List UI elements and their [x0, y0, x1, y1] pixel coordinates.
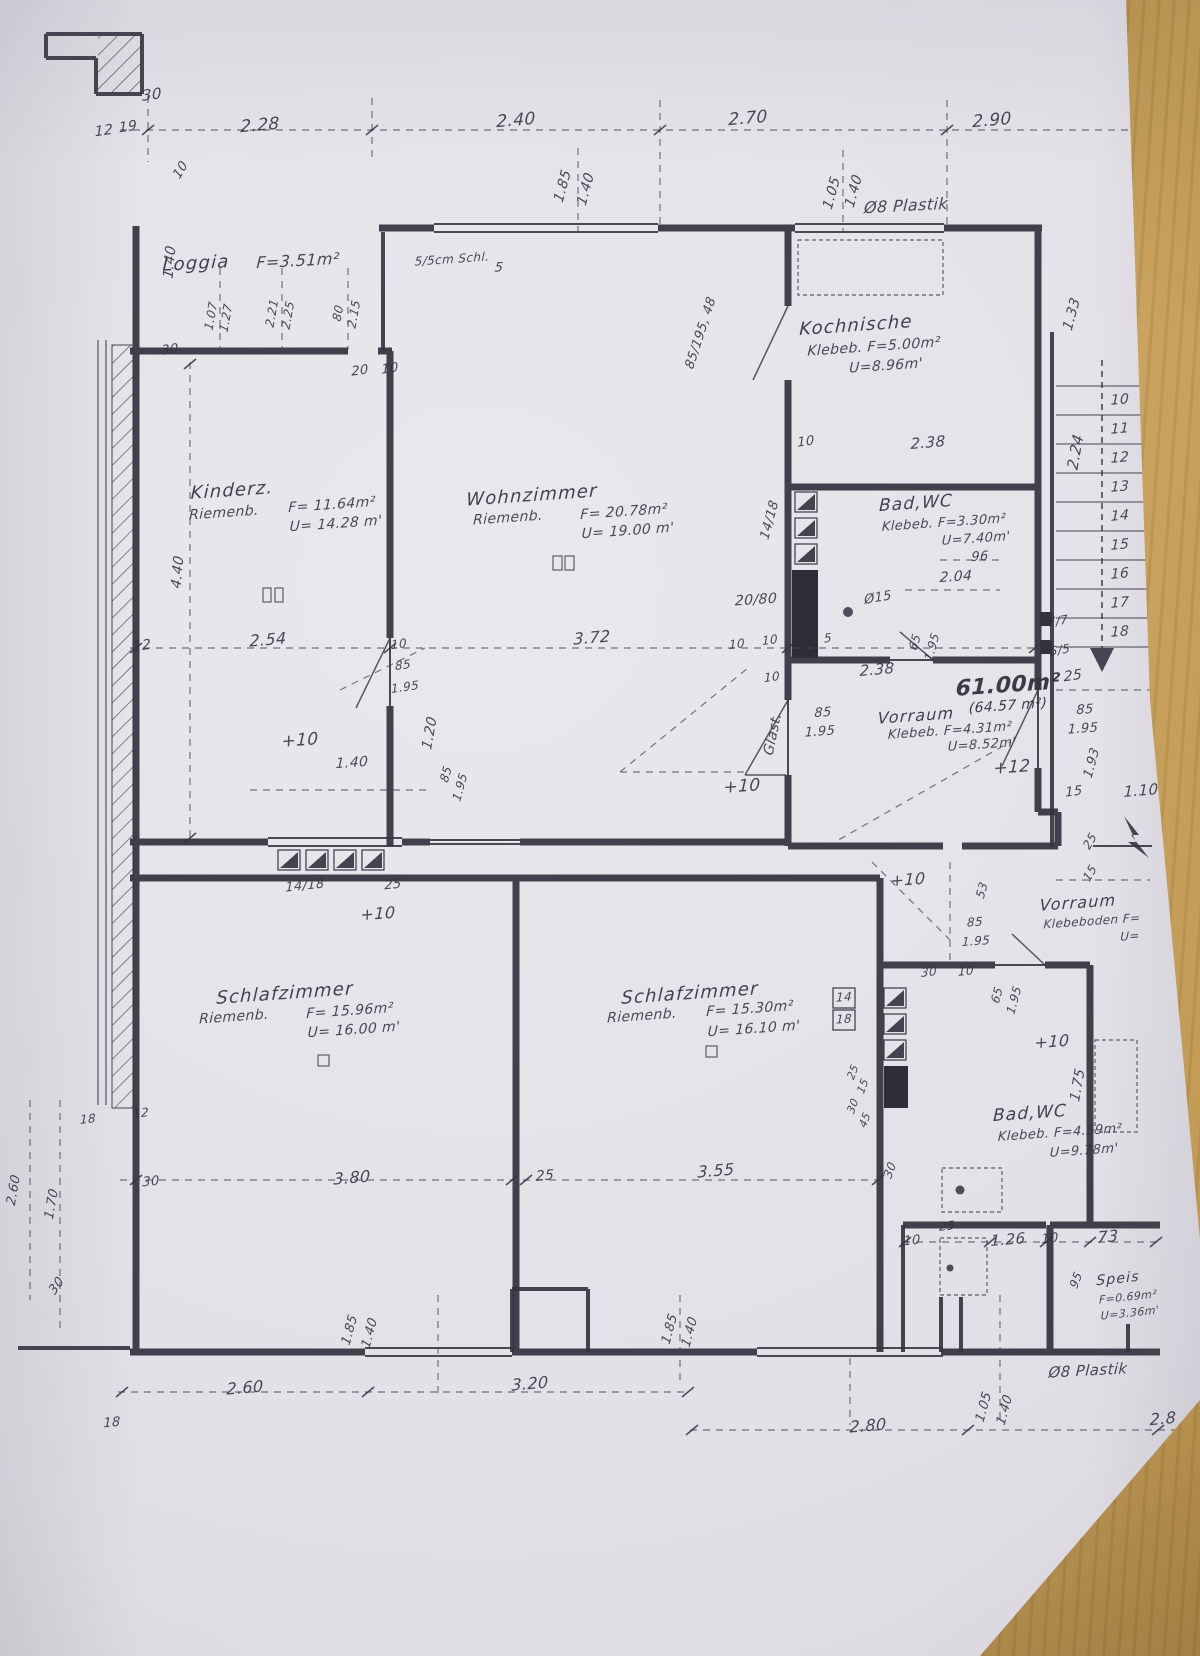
level-mark-label: +10: [1034, 1033, 1069, 1052]
stair-step-label: 18: [1111, 624, 1130, 640]
dim-label: 10: [762, 633, 778, 647]
dim-label: 10: [381, 361, 399, 376]
dim-label: 1.95: [391, 679, 419, 695]
note-label: 5/5cm Schl.: [414, 250, 489, 267]
dim-label: 2.70: [728, 109, 768, 130]
dim-label: Ø15: [864, 589, 892, 607]
dim-label: 1.33: [1061, 296, 1083, 333]
dim-label: 4.40: [170, 554, 187, 589]
room-spec-label: Riemenb.: [607, 1007, 677, 1026]
dim-label: 18: [80, 1112, 96, 1126]
dim-label: 1.75: [1068, 1067, 1087, 1103]
level-mark-label: +10: [281, 731, 319, 751]
dim-label: 1.40: [360, 1316, 380, 1350]
room-spec-label: Riemenb.: [189, 504, 259, 523]
dim-label: 30: [47, 1275, 67, 1298]
dim-label: 85: [395, 658, 411, 672]
stair-step-label: 12: [1111, 450, 1130, 466]
dim-label: 15: [1065, 784, 1083, 799]
room-spec-label: U= 16.10 m': [707, 1019, 800, 1040]
room-spec-label: U=7.40m': [941, 530, 1010, 548]
dim-label: 1.95: [1068, 721, 1099, 736]
dim-label: 20/80: [735, 591, 778, 608]
dim-label: 2.15: [346, 298, 363, 329]
dim-label: 2.90: [972, 111, 1012, 132]
dim-label: 45: [857, 1111, 872, 1130]
dim-label: 1.27: [218, 302, 235, 333]
dim-label: 10: [1041, 1232, 1058, 1247]
level-mark-label: +10: [723, 777, 761, 797]
dim-label: 3.72: [573, 628, 610, 647]
dim-label: 5: [824, 631, 832, 644]
dim-label: 85/195, 48: [684, 295, 719, 371]
dim-label: 3.80: [333, 1168, 370, 1187]
dim-label: 85: [967, 915, 983, 928]
dim-label: 1.05: [974, 1390, 994, 1424]
dim-label: 2.38: [859, 661, 894, 679]
dim-label: 2.54: [249, 630, 286, 649]
room-spec-label: F= 11.64m²: [288, 495, 376, 515]
dim-label: 30: [142, 86, 162, 104]
dim-label: 30: [882, 1160, 898, 1180]
level-mark-label: +12: [993, 758, 1031, 778]
dim-label: 85: [1076, 703, 1094, 717]
note-label: Ø8 Plastik: [1048, 1361, 1128, 1380]
dim-label: 15: [855, 1077, 870, 1096]
dim-label: 10: [764, 670, 780, 684]
dim-label: 12: [133, 1106, 149, 1120]
note-label: Glast.: [762, 711, 784, 757]
dim-label: 1.93: [1082, 746, 1102, 780]
stair-step-label: 16: [1111, 566, 1130, 582]
dim-label: 10: [391, 637, 407, 651]
dim-label: 1.40: [335, 755, 368, 771]
dim-label: 25: [1081, 830, 1099, 851]
room-spec-label: U=8.52m': [947, 736, 1016, 754]
dim-label: 3.55: [697, 1161, 734, 1180]
dim-label: 3.20: [511, 1374, 548, 1393]
room-spec-label: U=8.96m': [849, 356, 923, 375]
total-area-label: (64.57 m²): [968, 696, 1047, 716]
dim-label: 1.85: [660, 1312, 680, 1346]
dim-label: 14/18: [285, 877, 324, 894]
dim-label: 5: [494, 262, 504, 275]
level-mark-label: +10: [890, 871, 925, 890]
dim-label: 2.40: [496, 111, 536, 132]
dim-label: 80: [331, 303, 345, 322]
room-name-label: Loggia: [162, 253, 230, 275]
dim-label: 25: [384, 878, 401, 893]
dim-label: 2.28: [240, 116, 280, 137]
room-spec-label: Riemenb.: [473, 509, 543, 528]
room-spec-label: Riemenb.: [199, 1008, 269, 1027]
annotation-layer: 3012192.282.402.702.901.851.401.051.40Ø8…: [0, 0, 1200, 1656]
room-spec-label: U= 14.28 m': [289, 514, 382, 535]
room-name-label: Bad,WC: [993, 1103, 1068, 1125]
dim-label: 20: [351, 363, 369, 378]
room-spec-label: U=: [1120, 929, 1140, 942]
dim-label: 2.8: [1150, 1410, 1177, 1428]
room-spec-label: F= 15.96m²: [306, 1001, 394, 1021]
dim-label: 65: [907, 632, 922, 652]
stair-step-label: 14: [1111, 508, 1130, 524]
dim-label: 1.95: [451, 771, 470, 803]
stair-step-label: 10: [1111, 392, 1130, 408]
room-spec-label: Klebeb. F=4.59m²: [998, 1122, 1123, 1144]
dim-label: 19: [119, 119, 138, 136]
room-spec-label: F=3.51m²: [256, 251, 340, 271]
dim-label: 85: [814, 706, 832, 720]
dim-label: 73: [1097, 1228, 1118, 1246]
dim-label: 1.05: [821, 175, 843, 212]
dim-label: 30: [845, 1097, 860, 1116]
dim-label: 25: [1064, 668, 1083, 685]
dim-label: 30: [142, 1175, 159, 1190]
room-name-label: Kinderz.: [190, 479, 273, 503]
dim-label: 10: [729, 637, 745, 651]
dim-label: 1.40: [575, 171, 597, 208]
dim-label: 18: [103, 1416, 120, 1431]
room-name-label: Kochnische: [799, 313, 913, 339]
dim-label: 2.60: [5, 1173, 23, 1207]
room-spec-label: U=9.78m': [1049, 1142, 1118, 1160]
dim-label: 12: [133, 638, 152, 655]
dim-label: 2.60: [226, 1378, 263, 1397]
dim-label: 1.85: [552, 168, 574, 205]
dim-label: 2.80: [849, 1416, 886, 1435]
room-spec-label: U= 19.00 m': [581, 521, 674, 542]
dim-label: 10: [903, 1234, 920, 1249]
dim-label: 15: [1081, 862, 1099, 883]
photo-scene: 3012192.282.402.702.901.851.401.051.40Ø8…: [0, 0, 1200, 1656]
dim-label: 1.95: [805, 724, 836, 739]
dim-label: 5/5: [1049, 642, 1070, 658]
dim-label: 1.26: [990, 1231, 1025, 1249]
stair-step-label: 17: [1111, 595, 1130, 611]
room-spec-label: Klebeboden F=: [1043, 912, 1140, 931]
dim-label: 10: [958, 964, 974, 978]
level-mark-label: +10: [360, 905, 395, 924]
dim-label: 1.95: [1005, 984, 1024, 1016]
dim-label: 2.21: [264, 297, 281, 328]
dim-label: 2.04: [939, 569, 972, 585]
stair-step-label: 13: [1111, 479, 1130, 495]
dim-label: 14/18: [759, 499, 781, 542]
dim-label: 2.38: [910, 434, 945, 452]
stair-step-label: 11: [1111, 421, 1130, 437]
dim-label: 25: [536, 1168, 555, 1184]
dim-label: 1.40: [995, 1393, 1015, 1427]
dim-label: 1.10: [1123, 782, 1158, 800]
room-spec-label: U= 16.00 m': [307, 1020, 400, 1041]
dim-label: 96: [971, 550, 989, 564]
note-label: Ø8 Plastik: [864, 196, 949, 216]
room-name-label: Speis: [1096, 1270, 1139, 1289]
dim-label: 18: [836, 1012, 852, 1025]
dim-label: 1.85: [340, 1313, 360, 1347]
dim-label: 30: [921, 965, 937, 979]
dim-label: 1.95: [923, 631, 942, 663]
dim-label: 25: [939, 1219, 955, 1233]
dim-label: 12: [95, 123, 114, 140]
room-name-label: Bad,WC: [879, 493, 954, 515]
dim-label: 95: [1068, 1270, 1084, 1290]
dim-label: 65: [989, 985, 1004, 1005]
room-name-label: Vorraum: [1039, 892, 1116, 913]
dim-label: 30: [161, 342, 179, 357]
dim-label: 10: [171, 159, 190, 182]
dim-label: 1.95: [962, 934, 991, 948]
dim-label: 2.24: [1066, 433, 1087, 472]
dim-label: 53: [974, 880, 989, 900]
room-name-label: Wohnzimmer: [466, 482, 598, 509]
room-spec-label: U=3.36m': [1101, 1304, 1159, 1321]
dim-label: 1.40: [843, 173, 865, 210]
stair-step-label: 15: [1111, 537, 1130, 553]
dim-label: 85: [438, 764, 453, 784]
dim-label: 1.70: [43, 1187, 61, 1221]
dim-label: 1.20: [420, 715, 439, 751]
dim-label: 14: [836, 990, 852, 1003]
dim-label: 7/7: [1047, 613, 1068, 629]
dim-label: 2.25: [280, 299, 297, 330]
floorplan-paper: 3012192.282.402.702.901.851.401.051.40Ø8…: [0, 0, 1200, 1656]
room-spec-label: F=0.69m²: [1099, 1288, 1157, 1305]
dim-label: 1.40: [680, 1315, 700, 1349]
dim-label: 10: [797, 434, 815, 449]
room-spec-label: F= 20.78m²: [580, 502, 668, 522]
